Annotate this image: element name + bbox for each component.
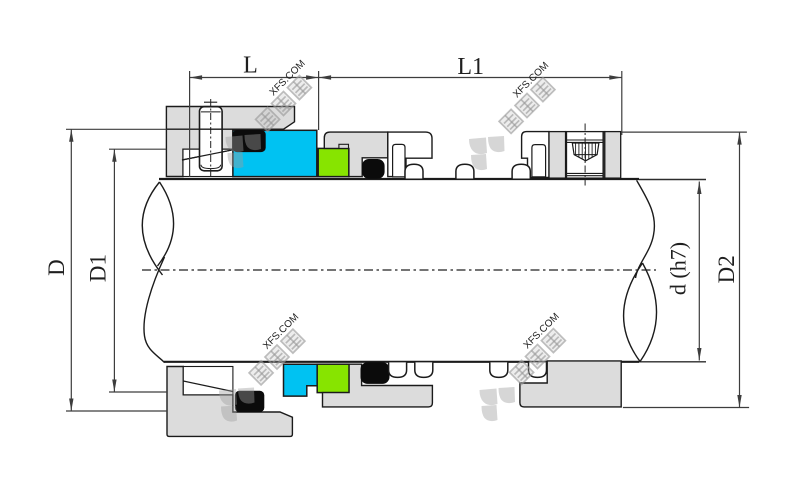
svg-text:d (h7): d (h7) (666, 242, 691, 295)
svg-text:D1: D1 (86, 254, 111, 282)
svg-text:L: L (243, 53, 258, 79)
svg-text:D2: D2 (714, 255, 739, 283)
svg-text:L1: L1 (457, 54, 484, 80)
svg-text:D: D (44, 259, 69, 276)
